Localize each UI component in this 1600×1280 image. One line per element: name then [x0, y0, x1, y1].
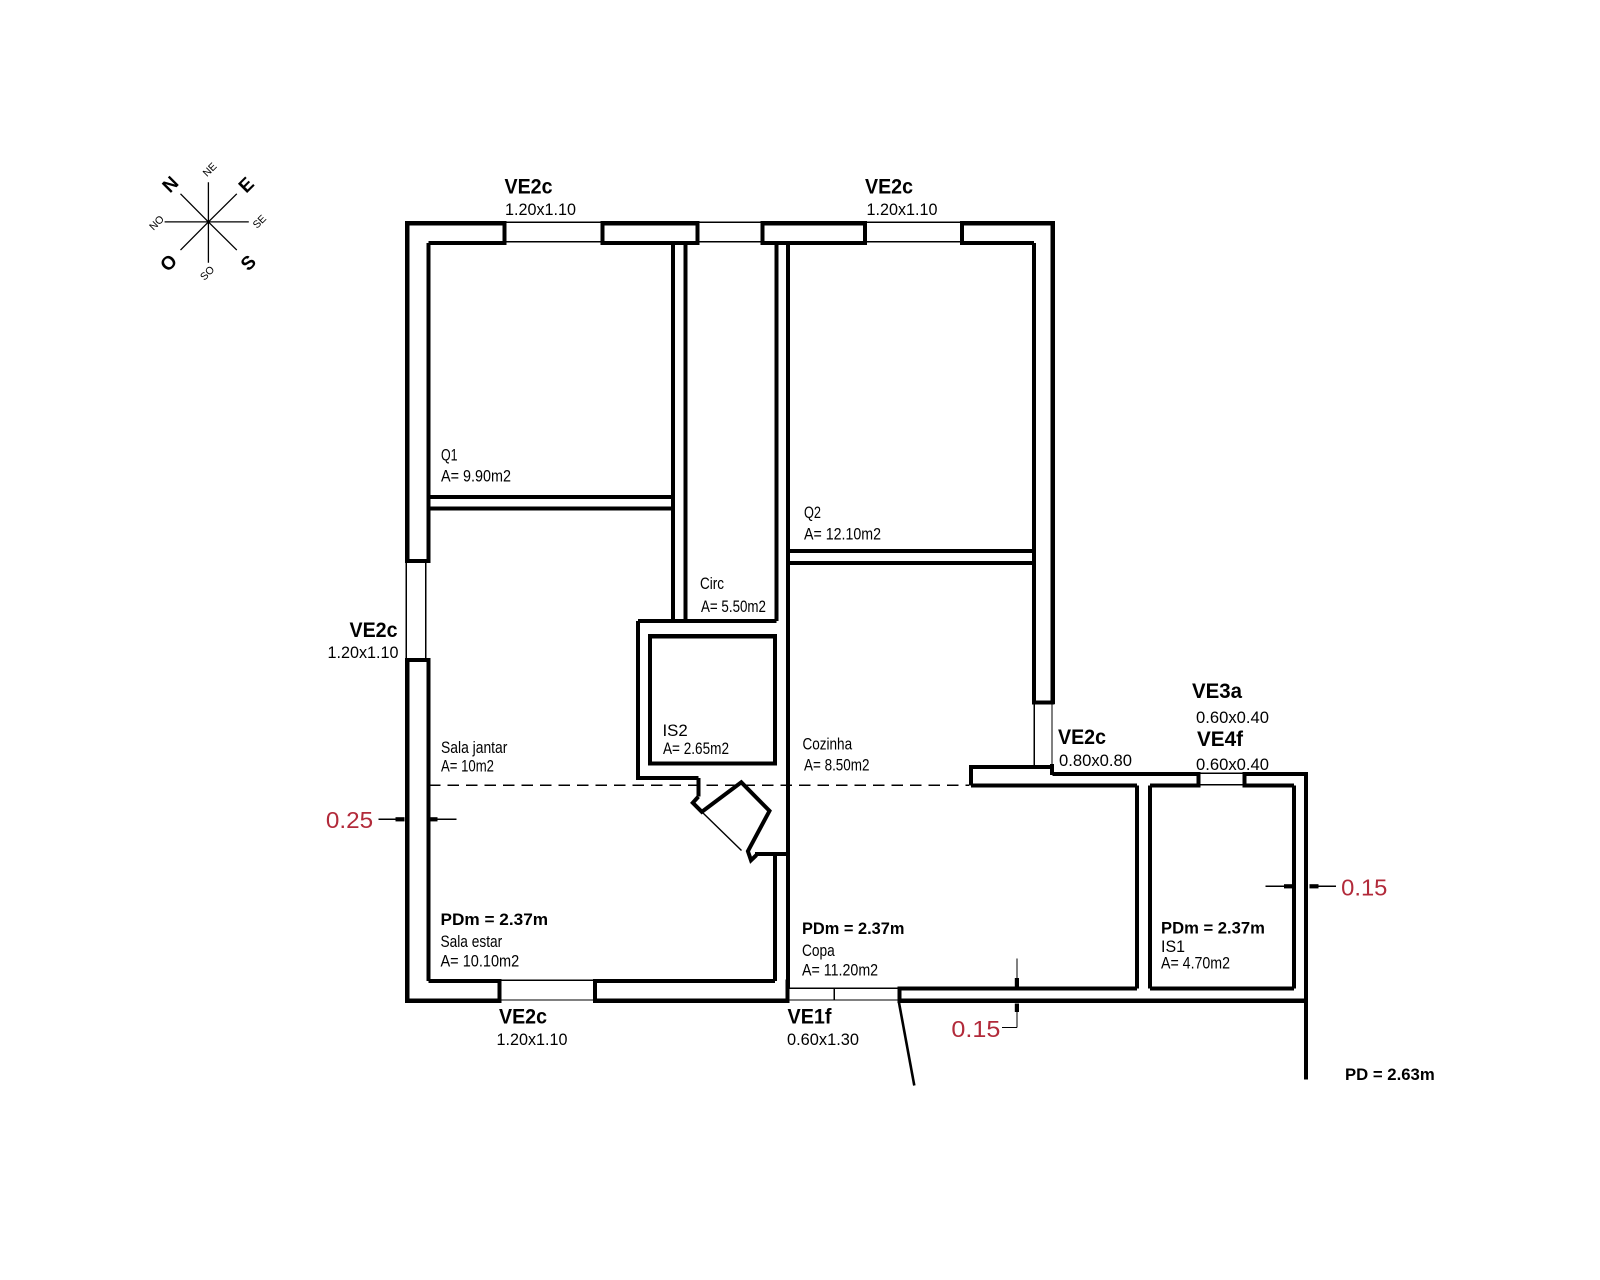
svg-text:VE4f: VE4f	[1197, 728, 1244, 751]
svg-text:A= 12.10m2: A= 12.10m2	[804, 525, 881, 544]
svg-text:A= 2.65m2: A= 2.65m2	[663, 739, 729, 758]
svg-text:1.20x1.10: 1.20x1.10	[328, 643, 399, 662]
svg-text:VE2c: VE2c	[505, 176, 553, 199]
svg-text:VE2c: VE2c	[499, 1006, 547, 1029]
svg-text:0.60x0.40: 0.60x0.40	[1196, 755, 1269, 774]
svg-text:1.20x1.10: 1.20x1.10	[497, 1030, 568, 1049]
svg-text:A= 10m2: A= 10m2	[441, 757, 494, 776]
svg-text:A= 9.90m2: A= 9.90m2	[441, 467, 511, 486]
svg-text:Copa: Copa	[802, 941, 835, 960]
svg-text:0.15: 0.15	[951, 1016, 1000, 1042]
svg-text:VE2c: VE2c	[865, 176, 913, 199]
svg-text:Sala estar: Sala estar	[441, 932, 503, 951]
svg-text:A= 10.10m2: A= 10.10m2	[441, 952, 520, 971]
svg-text:VE1f: VE1f	[788, 1006, 833, 1029]
svg-text:A= 11.20m2: A= 11.20m2	[802, 961, 878, 980]
svg-text:PDm = 2.37m: PDm = 2.37m	[1161, 919, 1265, 938]
svg-text:Circ: Circ	[700, 574, 724, 593]
svg-text:0.15: 0.15	[1341, 875, 1387, 901]
svg-text:VE2c: VE2c	[350, 619, 398, 642]
svg-text:1.20x1.10: 1.20x1.10	[867, 200, 938, 219]
svg-text:VE2c: VE2c	[1058, 726, 1106, 749]
svg-text:Q2: Q2	[804, 503, 821, 522]
svg-text:Q1: Q1	[441, 446, 458, 465]
svg-text:IS2: IS2	[663, 721, 688, 740]
svg-text:PDm = 2.37m: PDm = 2.37m	[441, 910, 549, 929]
svg-text:Sala jantar: Sala jantar	[441, 738, 508, 757]
svg-text:Cozinha: Cozinha	[803, 734, 853, 753]
svg-text:1.20x1.10: 1.20x1.10	[505, 200, 576, 219]
svg-text:0.60x0.40: 0.60x0.40	[1196, 708, 1269, 727]
svg-text:A= 8.50m2: A= 8.50m2	[804, 755, 870, 774]
svg-text:0.60x1.30: 0.60x1.30	[787, 1030, 859, 1049]
svg-text:PD = 2.63m: PD = 2.63m	[1345, 1065, 1435, 1084]
svg-text:0.25: 0.25	[326, 807, 373, 833]
svg-text:0.80x0.80: 0.80x0.80	[1059, 751, 1132, 770]
svg-text:A= 4.70m2: A= 4.70m2	[1161, 954, 1230, 973]
svg-text:PDm = 2.37m: PDm = 2.37m	[802, 919, 904, 938]
svg-text:A= 5.50m2: A= 5.50m2	[701, 597, 766, 616]
svg-text:VE3a: VE3a	[1192, 680, 1242, 703]
